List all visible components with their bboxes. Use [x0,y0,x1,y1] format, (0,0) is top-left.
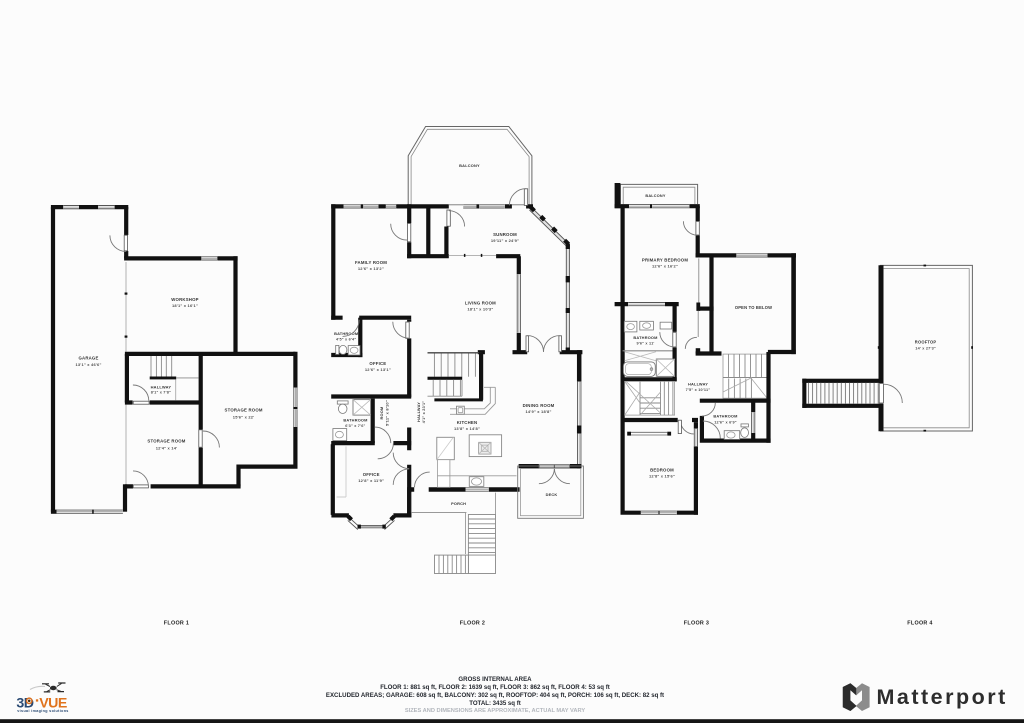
svg-text:BATHROOM: BATHROOM [713,414,737,419]
svg-text:BATHROOM: BATHROOM [633,335,657,340]
svg-text:DINING ROOM: DINING ROOM [523,403,555,408]
svg-text:4'1" x 23'1": 4'1" x 23'1" [422,401,426,424]
svg-text:FLOOR 1: FLOOR 1 [164,620,189,626]
svg-text:PORCH: PORCH [451,501,466,506]
svg-text:12'6" x 6'9": 12'6" x 6'9" [714,420,737,424]
svg-text:OFFICE: OFFICE [363,472,380,477]
svg-text:12'8" x 15'6": 12'8" x 15'6" [649,474,675,479]
svg-text:STORAGE ROOM: STORAGE ROOM [147,439,185,444]
svg-text:ROOFTOP: ROOFTOP [915,340,937,345]
svg-text:WORKSHOP: WORKSHOP [171,297,198,302]
svg-text:BEDROOM: BEDROOM [650,468,674,473]
svg-text:18'1" x 10'3": 18'1" x 10'3" [467,307,493,312]
svg-text:7'5" x 10'11": 7'5" x 10'11" [686,388,711,392]
svg-text:14'9" x 18'8": 14'9" x 18'8" [525,409,551,414]
svg-text:15'6" x 22': 15'6" x 22' [233,414,255,419]
svg-text:visual imaging solutions: visual imaging solutions [17,709,68,713]
svg-text:GARAGE: GARAGE [78,356,98,361]
svg-text:4'5" x 6'4": 4'5" x 6'4" [336,337,356,341]
svg-text:HALLWAY: HALLWAY [416,402,421,422]
svg-text:FLOOR 3: FLOOR 3 [684,620,709,626]
svg-text:8'1" x 7'8": 8'1" x 7'8" [151,391,171,395]
svg-text:BALCONY: BALCONY [459,163,480,168]
svg-text:BATHROOM: BATHROOM [343,418,367,423]
svg-text:EXCLUDED AREAS; GARAGE: 608 sq: EXCLUDED AREAS; GARAGE: 608 sq ft, BALCO… [326,692,664,699]
svg-text:12'4" x 14': 12'4" x 14' [156,445,178,450]
svg-text:STORAGE ROOM: STORAGE ROOM [225,408,263,413]
svg-text:FLOOR 4: FLOOR 4 [907,620,932,626]
svg-text:OPEN TO BELOW: OPEN TO BELOW [735,305,772,310]
svg-text:13'8" x 14'8": 13'8" x 14'8" [454,426,480,431]
svg-text:DECK: DECK [546,492,558,497]
svg-text:SUNROOM: SUNROOM [493,232,517,237]
svg-text:HALLWAY: HALLWAY [688,381,708,386]
svg-text:18'1" x 16'1": 18'1" x 16'1" [172,303,198,308]
svg-text:12'6" x 13'2": 12'6" x 13'2" [358,266,384,271]
svg-text:6'3" x 7'6": 6'3" x 7'6" [345,424,365,428]
svg-text:13'1" x 46'6": 13'1" x 46'6" [75,362,101,367]
svg-text:FAMILY ROOM: FAMILY ROOM [355,260,387,265]
svg-text:BALCONY: BALCONY [645,194,665,198]
svg-text:FLOOR 1: 881 sq ft, FLOOR 2: 1: FLOOR 1: 881 sq ft, FLOOR 2: 1639 sq ft,… [380,684,610,691]
svg-text:12'8" x 11'9": 12'8" x 11'9" [358,478,384,483]
svg-text:FLOOR 2: FLOOR 2 [460,620,485,626]
svg-text:TOTAL: 3435 sq ft: TOTAL: 3435 sq ft [469,700,521,707]
svg-text:Matterport: Matterport [877,685,1008,709]
svg-text:19'11" x 24'9": 19'11" x 24'9" [491,238,519,243]
svg-text:LIVING ROOM: LIVING ROOM [465,301,496,306]
svg-text:SIZES AND DIMENSIONS ARE APPRO: SIZES AND DIMENSIONS ARE APPROXIMATE, AC… [405,708,586,714]
svg-text:9'6" x 11': 9'6" x 11' [636,341,654,345]
svg-text:14' x 27'3": 14' x 27'3" [915,347,936,351]
svg-text:KITCHEN: KITCHEN [457,420,478,425]
svg-text:12'6" x 13'1": 12'6" x 13'1" [365,367,391,372]
svg-text:12'6" x 16'2": 12'6" x 16'2" [652,264,678,269]
svg-text:5'11" x 8'10": 5'11" x 8'10" [384,400,389,426]
svg-text:HALLWAY: HALLWAY [151,384,172,389]
svg-text:PRIMARY BEDROOM: PRIMARY BEDROOM [642,257,688,262]
svg-text:GROSS INTERNAL AREA: GROSS INTERNAL AREA [458,676,532,683]
svg-text:OFFICE: OFFICE [369,361,386,366]
